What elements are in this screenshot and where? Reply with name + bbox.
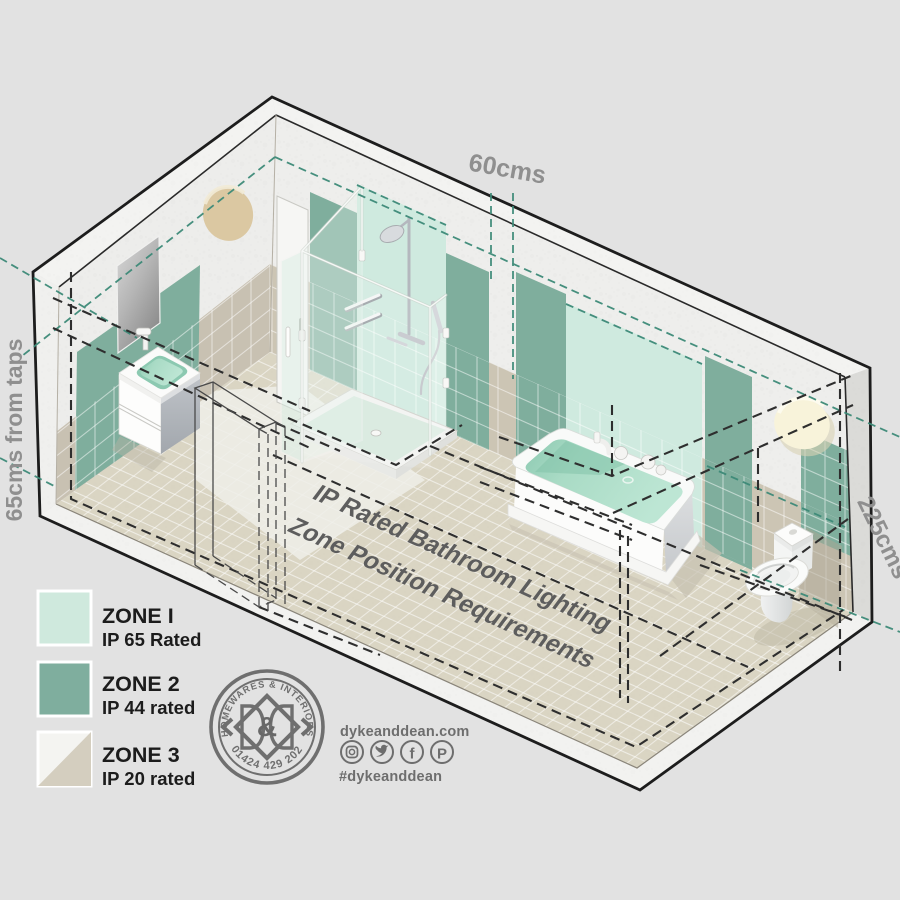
svg-text:IP 20 rated: IP 20 rated [102, 768, 195, 789]
svg-text:#dykeanddean: #dykeanddean [339, 769, 442, 785]
svg-text:IP 44 rated: IP 44 rated [102, 697, 195, 718]
svg-text:&: & [257, 711, 277, 742]
svg-text:P: P [437, 746, 447, 763]
svg-text:ZONE 3: ZONE 3 [102, 743, 180, 767]
svg-text:IP 65 Rated: IP 65 Rated [102, 629, 201, 650]
svg-text:ZONE 2: ZONE 2 [102, 672, 180, 696]
svg-text:65cms from taps: 65cms from taps [1, 339, 27, 522]
svg-text:dykeanddean.com: dykeanddean.com [340, 724, 470, 740]
svg-text:ZONE I: ZONE I [102, 604, 174, 628]
